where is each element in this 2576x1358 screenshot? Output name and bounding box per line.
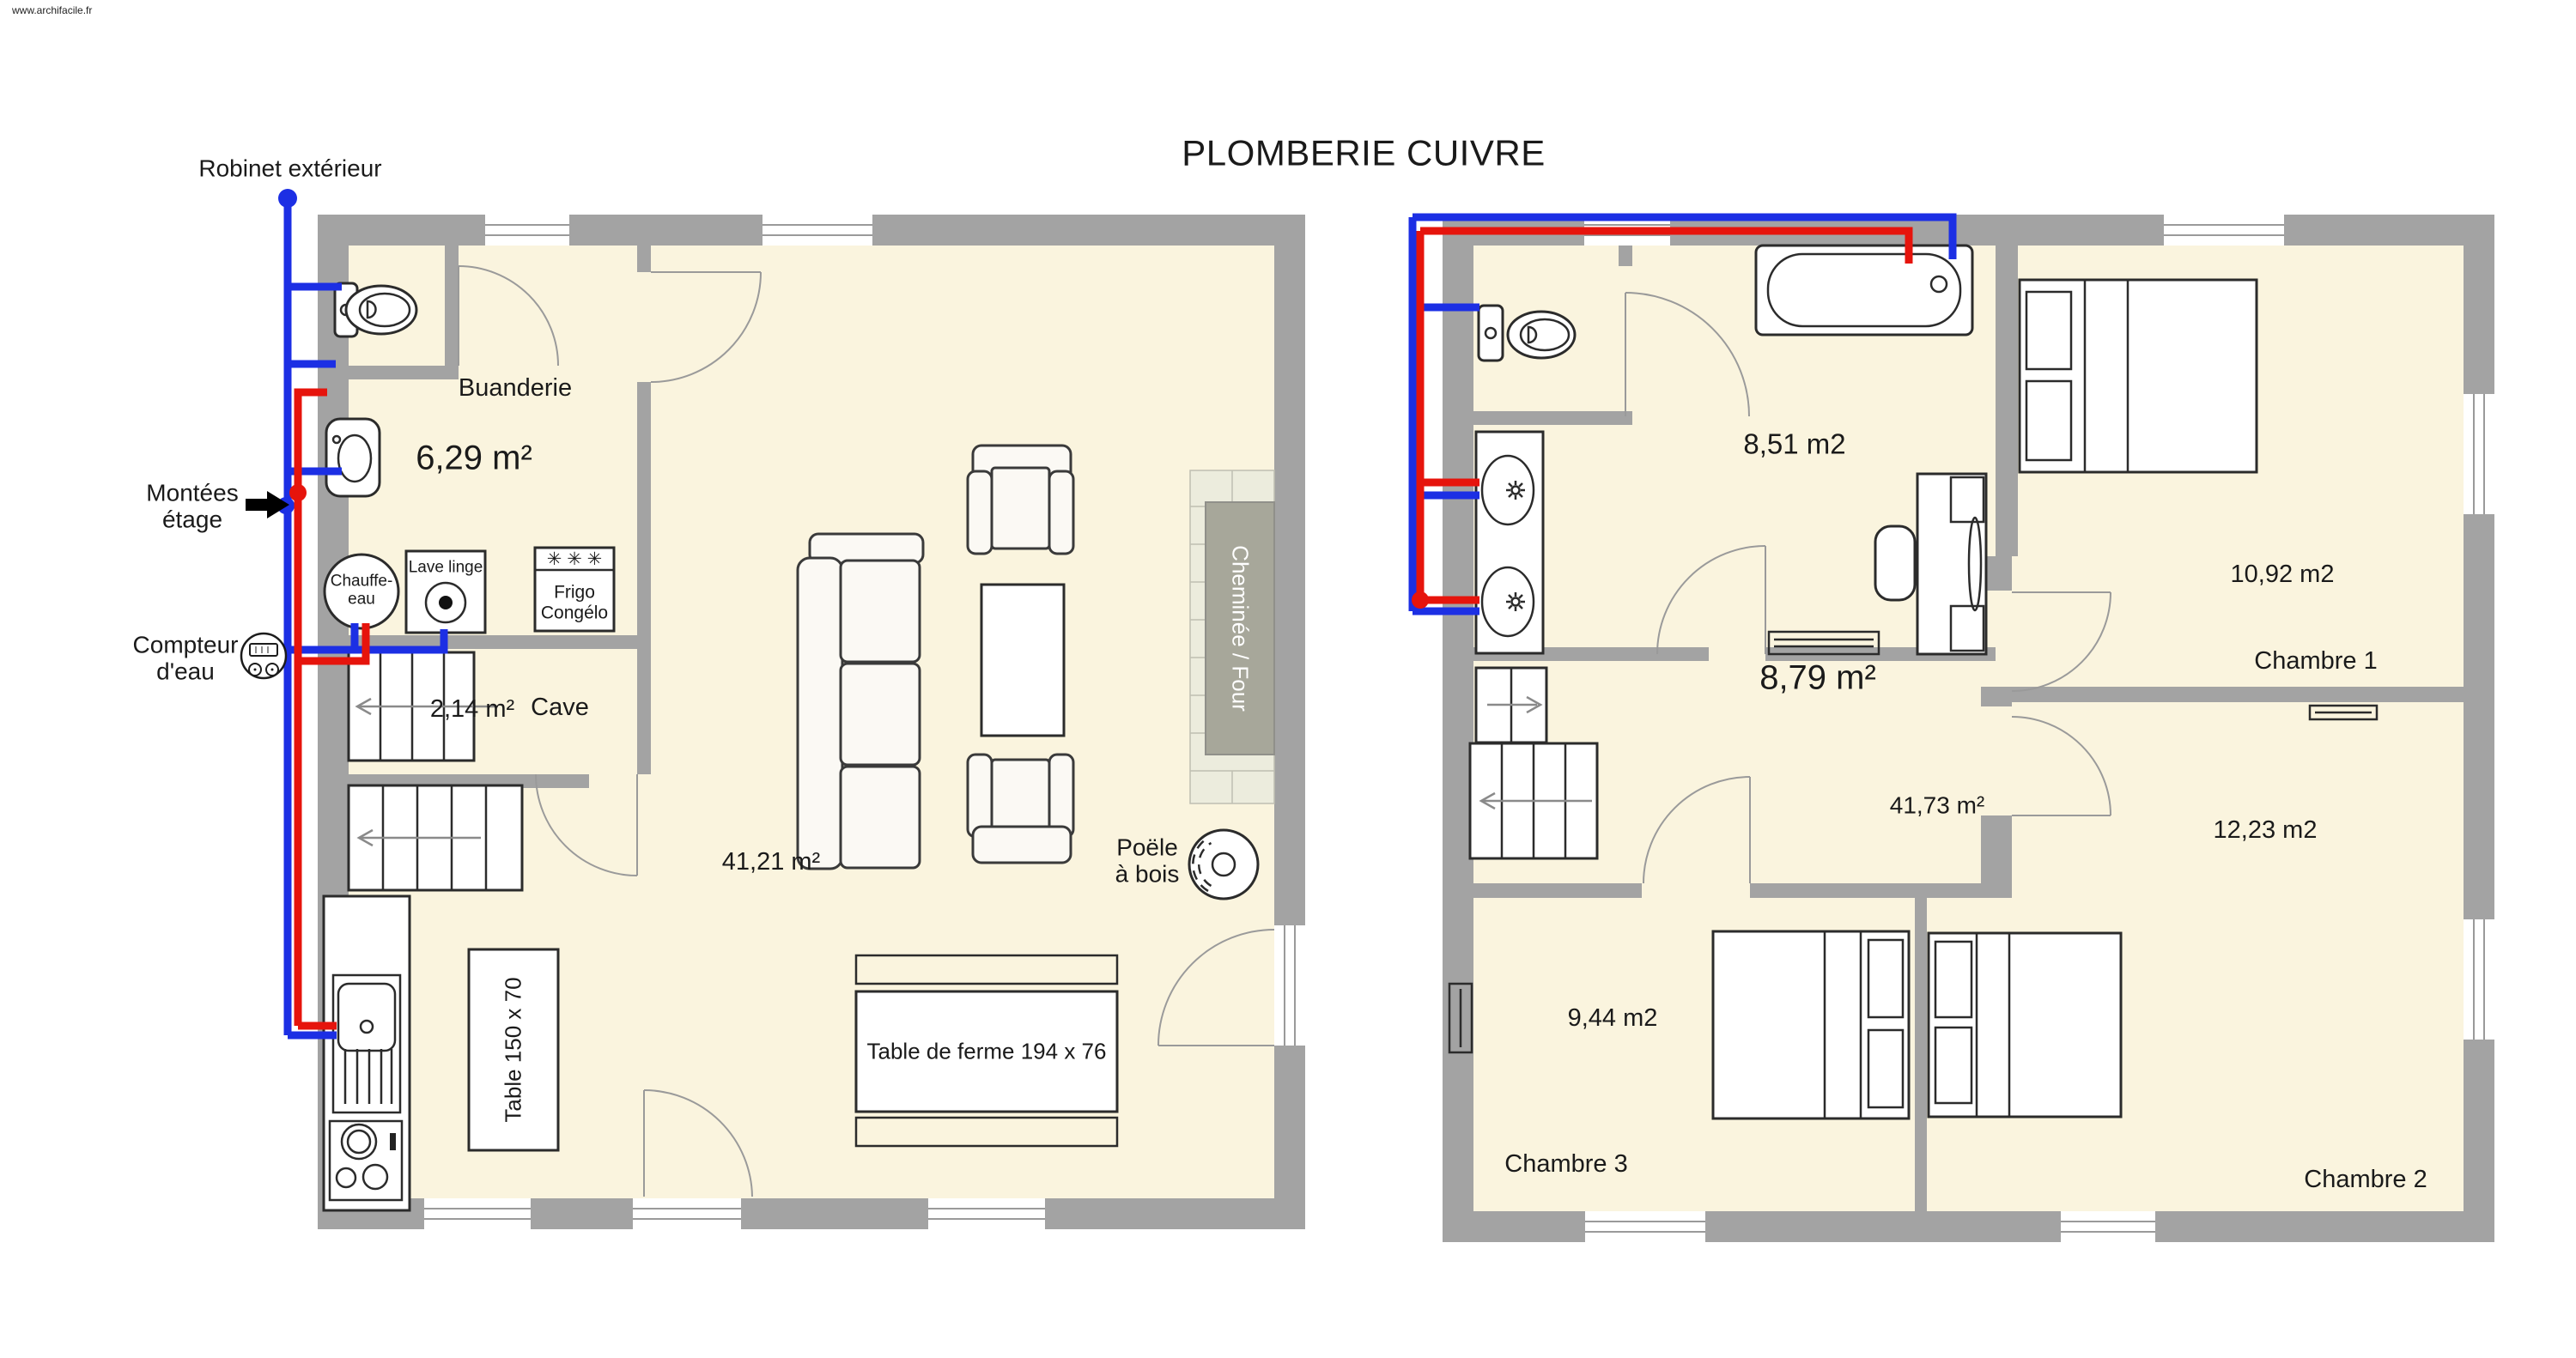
upper-stairs-entry-icon (1476, 668, 1546, 743)
bedroom1-area-label: 10,92 m2 (2231, 561, 2335, 588)
bedroom3-label: Chambre 3 (1504, 1150, 1627, 1178)
page-title: PLOMBERIE CUIVRE (1182, 132, 1545, 173)
bathroom-area-label: 8,51 m2 (1743, 429, 1845, 461)
bed-icon-bedroom2 (1929, 933, 2121, 1117)
double-washbasin-icon (1476, 432, 1543, 653)
ground-floor-plan (241, 189, 1305, 1229)
water-meter-icon (241, 634, 286, 678)
bed-icon-bedroom1 (2020, 280, 2257, 472)
laundry-room-label: Buanderie (459, 374, 572, 402)
stove-line1: Poële (1115, 834, 1180, 861)
outdoor-tap-label: Robinet extérieur (198, 155, 381, 181)
landing-area-label: 8,79 m² (1759, 659, 1876, 698)
bed-icon-bedroom3 (1713, 931, 1909, 1119)
risers-line2: étage (146, 506, 238, 533)
washbasin-icon (326, 419, 380, 496)
cellar-area-label: 2,14 m² (430, 695, 514, 723)
toilet-icon (335, 283, 416, 336)
fridge-line2: Congélo (541, 603, 608, 623)
plan-drawing (0, 0, 2576, 1358)
wood-stove-icon (1189, 830, 1258, 899)
water-meter-line1: Compteur (133, 632, 239, 658)
upper-floor-plan (1412, 215, 2494, 1242)
laundry-area-label: 6,29 m² (416, 440, 532, 478)
bedroom2-area-label: 12,23 m2 (2214, 816, 2318, 844)
water-meter-line2: d'eau (133, 658, 239, 685)
washer-label: Lave linge (409, 558, 483, 576)
bathtub-icon (1756, 246, 1972, 335)
fridge-label: Frigo Congélo (541, 582, 608, 622)
fridge-line1: Frigo (541, 582, 608, 603)
heater-line2: eau (331, 591, 393, 609)
hot-riser-point (289, 484, 307, 501)
sofa-icon (798, 534, 923, 869)
hot-riser-arrival-point (1412, 591, 1429, 609)
bedroom2-label: Chambre 2 (2304, 1166, 2427, 1193)
armchair-icon-2 (968, 755, 1073, 863)
heater-line1: Chauffe- (331, 573, 393, 591)
kitchen-counter-icon (324, 896, 410, 1210)
stairs-icon (349, 785, 522, 890)
farm-table-label: Table de ferme 194 x 76 (867, 1039, 1107, 1064)
floor-plan-page: { "labels": { "watermark": "www.archifac… (0, 0, 2576, 1358)
risers-label: Montées étage (146, 480, 238, 534)
upper-stairs-icon (1470, 743, 1597, 858)
risers-arrow-icon (246, 491, 289, 518)
total-area-label: 41,73 m² (1890, 791, 1985, 818)
faucet-icon (1506, 481, 1525, 500)
fridge-stars: ✳ ✳ ✳ (547, 549, 602, 570)
cellar-label: Cave (531, 694, 589, 721)
bedroom1-label: Chambre 1 (2254, 647, 2377, 675)
living-area-label: 41,21 m² (722, 848, 820, 876)
watermark: www.archifacile.fr (12, 5, 92, 16)
wood-stove-label: Poële à bois (1115, 834, 1180, 888)
armchair-icon (968, 446, 1073, 554)
stove-line2: à bois (1115, 861, 1180, 888)
water-heater-label: Chauffe- eau (331, 573, 393, 609)
water-meter-label: Compteur d'eau (133, 632, 239, 686)
outdoor-tap-point (278, 189, 297, 208)
risers-line1: Montées (146, 480, 238, 506)
faucet-icon (1506, 592, 1525, 611)
small-table-label: Table 150 x 70 (501, 977, 526, 1122)
bedroom3-area-label: 9,44 m2 (1568, 1004, 1658, 1032)
coffee-table-icon (981, 585, 1064, 736)
fireplace-label: Cheminée / Four (1227, 545, 1252, 712)
